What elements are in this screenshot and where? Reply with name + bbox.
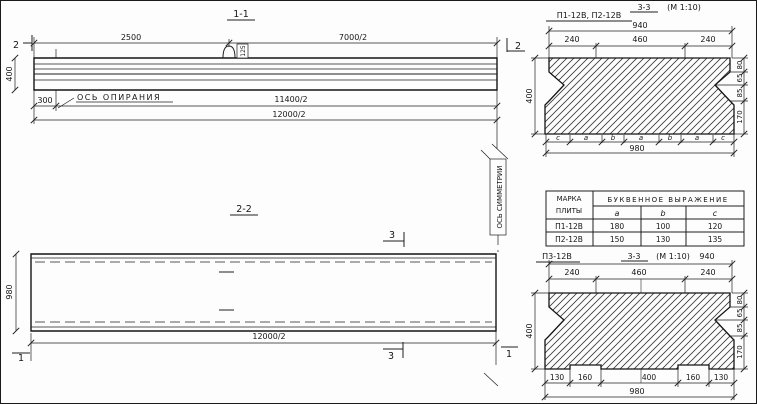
marker-label: 1 — [506, 349, 512, 360]
dim-160-right: 160 — [686, 373, 701, 382]
dim-11400-2: 11400/2 — [274, 95, 307, 104]
dim-85: 85 — [736, 89, 744, 98]
slab-cross-section — [545, 293, 734, 369]
lifting-loop-label: 125 — [240, 45, 247, 57]
dim-85: 85 — [736, 324, 744, 333]
section-3-3-scale: (М 1:10) — [656, 252, 690, 261]
section-3-3-p1-p2: 3-3 (М 1:10) П1-12В, П2-12В 940 240 460 … — [525, 3, 748, 157]
dim-2500: 2500 — [121, 33, 141, 42]
section-marker-1-left: 1 — [12, 353, 30, 364]
dim-130-left: 130 — [550, 373, 565, 382]
break-mark — [484, 373, 498, 386]
dim-80: 80 — [736, 296, 744, 305]
section-2-2-title: 2-2 — [236, 204, 252, 215]
section-2-2: 2-2 3 980 12000/2 1 — [5, 204, 518, 365]
section-marker-1-right: 1 — [501, 347, 518, 360]
dim-240-left: 240 — [564, 35, 579, 44]
dim-height-400: 400 — [5, 66, 14, 81]
dim-170: 170 — [736, 345, 744, 358]
letter-a: a — [584, 134, 588, 142]
marker-label: 3 — [388, 351, 394, 362]
dim-65: 65 — [736, 309, 744, 318]
dim-240-right: 240 — [700, 268, 715, 277]
section-1-1-title: 1-1 — [233, 9, 249, 20]
plate-mark-label: П3-12В — [542, 252, 572, 261]
section-3-3-p3: П3-12В 3-3 (М 1:10) 940 240 460 240 — [484, 252, 748, 400]
support-axis-leader — [58, 98, 74, 108]
dim-7000-2: 7000/2 — [339, 33, 367, 42]
dim-12000-2: 12000/2 — [272, 110, 305, 119]
section-marker-2-left: 2 — [13, 35, 32, 51]
table-col-a: a — [615, 209, 620, 218]
marker-label: 1 — [18, 353, 24, 364]
dim-height-400: 400 — [525, 88, 534, 103]
section-marker-3-top: 3 — [383, 230, 404, 247]
drawing-canvas: 1-1 — [1, 1, 757, 404]
dim-80: 80 — [736, 61, 744, 70]
dim-65: 65 — [736, 74, 744, 83]
letter-c: c — [721, 134, 725, 142]
dim-980: 980 — [629, 144, 644, 153]
dim-240-right: 240 — [700, 35, 715, 44]
slab-cross-section — [545, 58, 734, 134]
dim-460: 460 — [632, 35, 647, 44]
letter-b: b — [611, 134, 616, 142]
symmetry-axis-label: ОСЬ СИММЕТРИИ — [496, 165, 504, 228]
row-c: 135 — [708, 235, 723, 244]
dim-12000-2-plan: 12000/2 — [252, 332, 285, 341]
row-mark: П1-12В — [555, 222, 583, 231]
table-header-expression: БУКВЕННОЕ ВЫРАЖЕНИЕ — [607, 196, 728, 204]
dim-160-left: 160 — [578, 373, 593, 382]
marker-label: 2 — [13, 40, 19, 51]
section-marker-3-bottom: 3 — [383, 342, 403, 362]
table-col-c: c — [713, 209, 718, 218]
letter-a: a — [695, 134, 699, 142]
symmetry-axis: ОСЬ СИММЕТРИИ — [481, 150, 506, 252]
dim-130-right: 130 — [714, 373, 729, 382]
break-mark — [492, 144, 508, 159]
section-3-3-title: 3-3 — [637, 3, 650, 12]
marker-label: 3 — [389, 230, 395, 241]
letter-a: a — [639, 134, 643, 142]
dim-940: 940 — [699, 252, 714, 261]
row-mark: П2-12В — [555, 235, 583, 244]
section-marker-2-right: 2 — [507, 38, 525, 52]
table-header-mark-2: ПЛИТЫ — [556, 207, 582, 215]
slab-plan — [31, 254, 496, 331]
table-header-mark-1: МАРКА — [557, 195, 582, 203]
section-1-1: 1-1 — [5, 9, 525, 159]
letter-b: b — [668, 134, 673, 142]
letter-c: c — [556, 134, 560, 142]
section-3-3-scale: (М 1:10) — [667, 3, 701, 12]
marker-label: 2 — [515, 41, 521, 52]
dim-400-bottom: 400 — [642, 373, 657, 382]
row-b: 130 — [656, 235, 671, 244]
dim-170: 170 — [736, 110, 744, 123]
dim-940: 940 — [632, 21, 647, 30]
row-c: 120 — [708, 222, 723, 231]
dim-300: 300 — [37, 96, 52, 105]
lifting-loop — [223, 46, 235, 58]
slab-elevation — [34, 58, 497, 90]
dim-240-left: 240 — [564, 268, 579, 277]
dim-460: 460 — [631, 268, 646, 277]
row-a: 180 — [610, 222, 625, 231]
plate-marks-label: П1-12В, П2-12В — [557, 11, 621, 20]
section-3-3-title: 3-3 — [627, 252, 640, 261]
dim-980: 980 — [629, 387, 644, 396]
row-b: 100 — [656, 222, 671, 231]
support-axis-label: ОСЬ ОПИРАНИЯ — [77, 93, 161, 102]
row-a: 150 — [610, 235, 625, 244]
drawing-sheet: 1-1 — [0, 0, 757, 404]
table-col-b: b — [660, 209, 665, 218]
dim-height-400: 400 — [525, 323, 534, 338]
dim-height-980: 980 — [5, 284, 14, 299]
letter-expression-table: МАРКА ПЛИТЫ БУКВЕННОЕ ВЫРАЖЕНИЕ a b c П1… — [546, 191, 744, 246]
